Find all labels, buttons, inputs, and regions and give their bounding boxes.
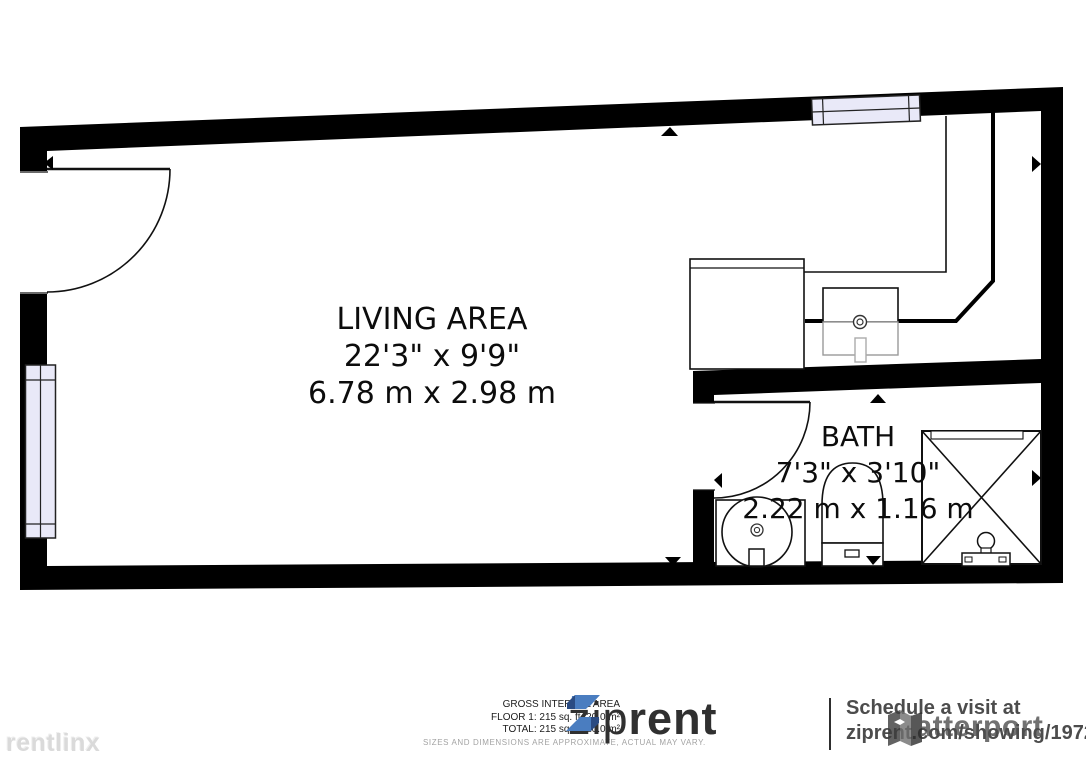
footer-divider xyxy=(829,698,831,750)
matterport-watermark: Matterport xyxy=(886,710,1043,744)
window-icon xyxy=(812,95,921,125)
room-label-living: LIVING AREA 22'3" x 9'9" 6.78 m x 2.98 m xyxy=(207,301,657,412)
floorplan-page: LIVING AREA 22'3" x 9'9" 6.78 m x 2.98 m… xyxy=(0,0,1086,768)
room-dim-imperial: 22'3" x 9'9" xyxy=(207,338,657,375)
room-dim-imperial: 7'3" x 3'10" xyxy=(698,455,1018,491)
room-label-bath: BATH 7'3" x 3'10" 2.22 m x 1.16 m xyxy=(698,419,1018,527)
ziprent-rent: rent xyxy=(629,693,718,744)
room-dim-metric: 2.22 m x 1.16 m xyxy=(698,491,1018,527)
footer: GROSS INTERNAL AREA FLOOR 1: 215 sq. ft,… xyxy=(0,690,1086,768)
room-name: LIVING AREA xyxy=(207,301,657,338)
ziprent-logo: ziprent xyxy=(563,695,718,743)
room-name: BATH xyxy=(698,419,1018,455)
kitchen-sink-icon xyxy=(823,288,898,362)
rentlinx-watermark: rentlinx xyxy=(6,729,100,758)
window-icon xyxy=(26,365,56,538)
room-dim-metric: 6.78 m x 2.98 m xyxy=(207,375,657,412)
